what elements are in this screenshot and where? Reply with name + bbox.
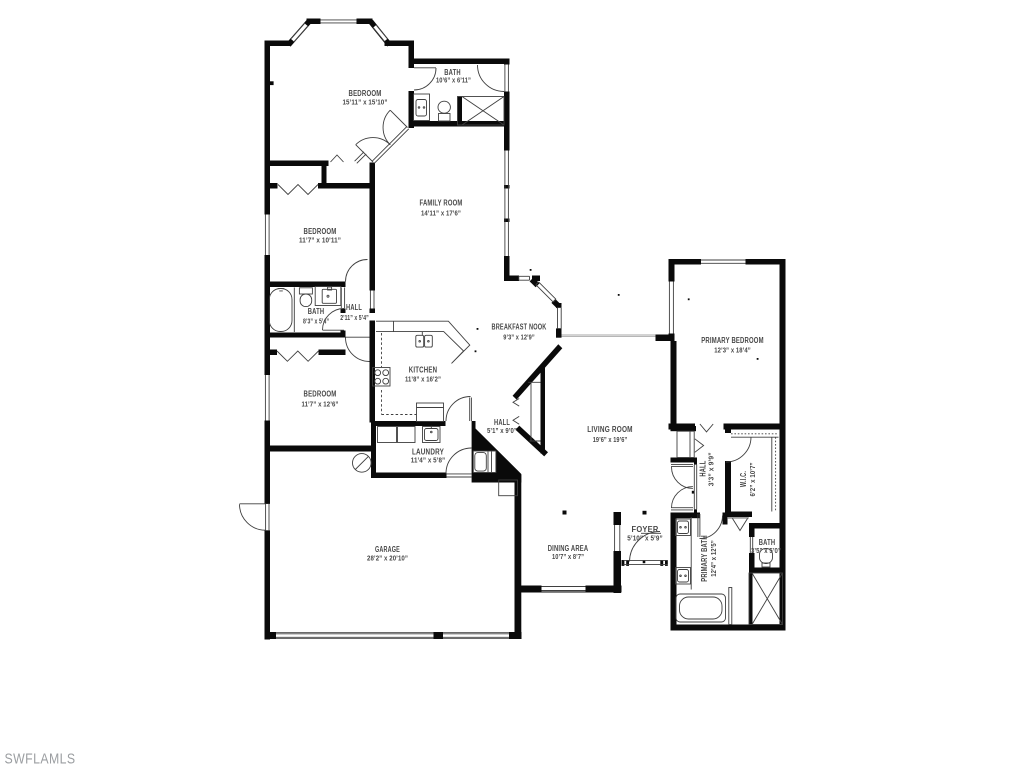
svg-text:5’10” x 5’9”: 5’10” x 5’9” [627,533,663,542]
svg-text:2’11” x 5’4”: 2’11” x 5’4” [340,313,369,322]
svg-text:BATH: BATH [308,307,325,316]
svg-text:19’6” x 19’6”: 19’6” x 19’6” [593,435,628,444]
svg-text:PRIMARY BEDROOM: PRIMARY BEDROOM [701,336,764,345]
svg-text:HALL: HALL [346,303,362,312]
svg-text:9’3” x 12’9”: 9’3” x 12’9” [503,333,535,342]
svg-text:28’2” x 20’10”: 28’2” x 20’10” [367,553,408,562]
svg-text:PRIMARY BATH: PRIMARY BATH [700,535,709,582]
svg-text:8’3” x 5’4”: 8’3” x 5’4” [303,317,329,326]
svg-text:10’6” x 6’11”: 10’6” x 6’11” [436,75,471,84]
svg-text:LIVING ROOM: LIVING ROOM [587,425,633,434]
svg-text:14’11” x 17’6”: 14’11” x 17’6” [421,209,461,218]
svg-text:KITCHEN: KITCHEN [409,366,438,375]
svg-text:12’3” x 18’4”: 12’3” x 18’4” [714,346,751,355]
svg-text:BEDROOM: BEDROOM [304,390,337,399]
svg-text:W.I.C.: W.I.C. [739,471,748,487]
svg-text:11’7” x 12’6”: 11’7” x 12’6” [302,400,339,409]
svg-text:3’3” x 9’9”: 3’3” x 9’9” [706,452,715,486]
svg-text:6’2” x 10’7”: 6’2” x 10’7” [748,462,757,496]
svg-text:11’4” x 5’8”: 11’4” x 5’8” [411,456,446,465]
svg-text:FAMILY ROOM: FAMILY ROOM [420,199,463,208]
svg-text:SWFLAMLS: SWFLAMLS [5,751,76,768]
svg-text:3’5” x 5’0”: 3’5” x 5’0” [751,546,781,555]
svg-text:15’11” x 15’10”: 15’11” x 15’10” [343,98,388,107]
svg-text:BREAKFAST NOOK: BREAKFAST NOOK [492,323,547,332]
svg-text:11’7” x 10’11”: 11’7” x 10’11” [299,235,341,244]
svg-text:10’7” x 8’7”: 10’7” x 8’7” [552,552,584,561]
svg-text:5’1” x 9’0”: 5’1” x 9’0” [487,426,517,435]
svg-text:12’4” x 12’5”: 12’4” x 12’5” [709,540,718,577]
svg-text:11’8” x 16’2”: 11’8” x 16’2” [405,375,441,384]
